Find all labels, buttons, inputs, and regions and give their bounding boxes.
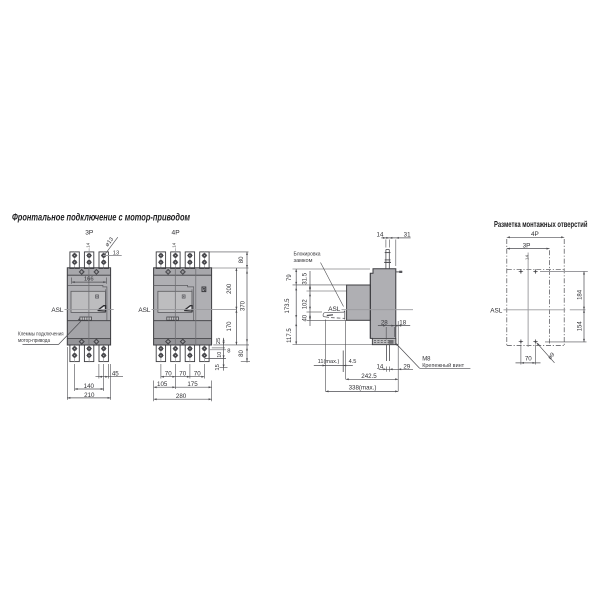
svg-text:14: 14 bbox=[172, 242, 177, 248]
svg-text:280: 280 bbox=[176, 393, 187, 400]
svg-text:70: 70 bbox=[179, 370, 186, 377]
svg-text:4.5: 4.5 bbox=[349, 359, 357, 365]
svg-text:15: 15 bbox=[215, 364, 221, 370]
svg-text:28: 28 bbox=[381, 320, 388, 327]
svg-text:173.5: 173.5 bbox=[285, 298, 291, 314]
svg-text:ASL: ASL bbox=[490, 307, 503, 314]
svg-text:4P: 4P bbox=[172, 230, 181, 237]
svg-text:70: 70 bbox=[194, 370, 201, 377]
svg-text:13: 13 bbox=[113, 250, 119, 256]
svg-text:370: 370 bbox=[241, 300, 247, 311]
svg-text:184: 184 bbox=[577, 289, 583, 300]
svg-text:170: 170 bbox=[227, 321, 233, 332]
svg-text:ASL: ASL bbox=[138, 307, 151, 314]
svg-text:70: 70 bbox=[165, 370, 172, 377]
svg-text:200: 200 bbox=[227, 283, 233, 294]
svg-text:242.5: 242.5 bbox=[361, 373, 377, 380]
svg-text:ASL: ASL bbox=[328, 306, 341, 313]
svg-text:80: 80 bbox=[239, 350, 245, 357]
svg-text:29: 29 bbox=[403, 363, 410, 370]
svg-text:18: 18 bbox=[399, 320, 406, 327]
svg-text:102: 102 bbox=[302, 299, 308, 310]
svg-text:14: 14 bbox=[524, 255, 529, 261]
svg-text:14: 14 bbox=[376, 363, 383, 370]
svg-text:4P: 4P bbox=[531, 231, 539, 238]
svg-text:140: 140 bbox=[84, 383, 95, 390]
svg-text:Клеммы подключения: Клеммы подключения bbox=[18, 331, 64, 337]
svg-text:Блокировка: Блокировка bbox=[294, 252, 321, 258]
svg-text:45: 45 bbox=[112, 370, 119, 377]
svg-text:80: 80 bbox=[239, 256, 245, 263]
svg-text:10: 10 bbox=[217, 352, 223, 358]
svg-text:мотор-привода: мотор-привода bbox=[18, 338, 50, 344]
svg-text:31.5: 31.5 bbox=[302, 272, 308, 284]
svg-text:ASL: ASL bbox=[51, 307, 64, 314]
svg-text:40: 40 bbox=[302, 314, 308, 321]
svg-text:11(max.): 11(max.) bbox=[318, 359, 340, 365]
svg-text:M8: M8 bbox=[422, 356, 431, 362]
svg-text:14: 14 bbox=[85, 242, 90, 248]
svg-text:166: 166 bbox=[84, 276, 94, 282]
svg-text:338(max.): 338(max.) bbox=[349, 384, 377, 391]
svg-text:105: 105 bbox=[157, 381, 168, 388]
svg-text:8: 8 bbox=[227, 349, 230, 355]
svg-text:79: 79 bbox=[287, 274, 293, 281]
svg-text:70: 70 bbox=[525, 356, 532, 363]
svg-text:31: 31 bbox=[404, 231, 411, 238]
svg-text:154: 154 bbox=[577, 321, 583, 332]
svg-text:3P: 3P bbox=[523, 243, 531, 250]
svg-text:25: 25 bbox=[216, 338, 222, 344]
svg-text:Разметка монтажных отверстий: Разметка монтажных отверстий bbox=[494, 220, 588, 229]
svg-text:117.5: 117.5 bbox=[287, 328, 293, 343]
svg-text:замком: замком bbox=[294, 258, 313, 264]
svg-text:14: 14 bbox=[377, 231, 384, 238]
svg-text:175: 175 bbox=[187, 381, 198, 388]
svg-text:Фронтальное подключение с мото: Фронтальное подключение с мотор-приводом bbox=[12, 213, 191, 224]
svg-text:3P: 3P bbox=[85, 230, 94, 237]
svg-text:210: 210 bbox=[84, 392, 95, 399]
